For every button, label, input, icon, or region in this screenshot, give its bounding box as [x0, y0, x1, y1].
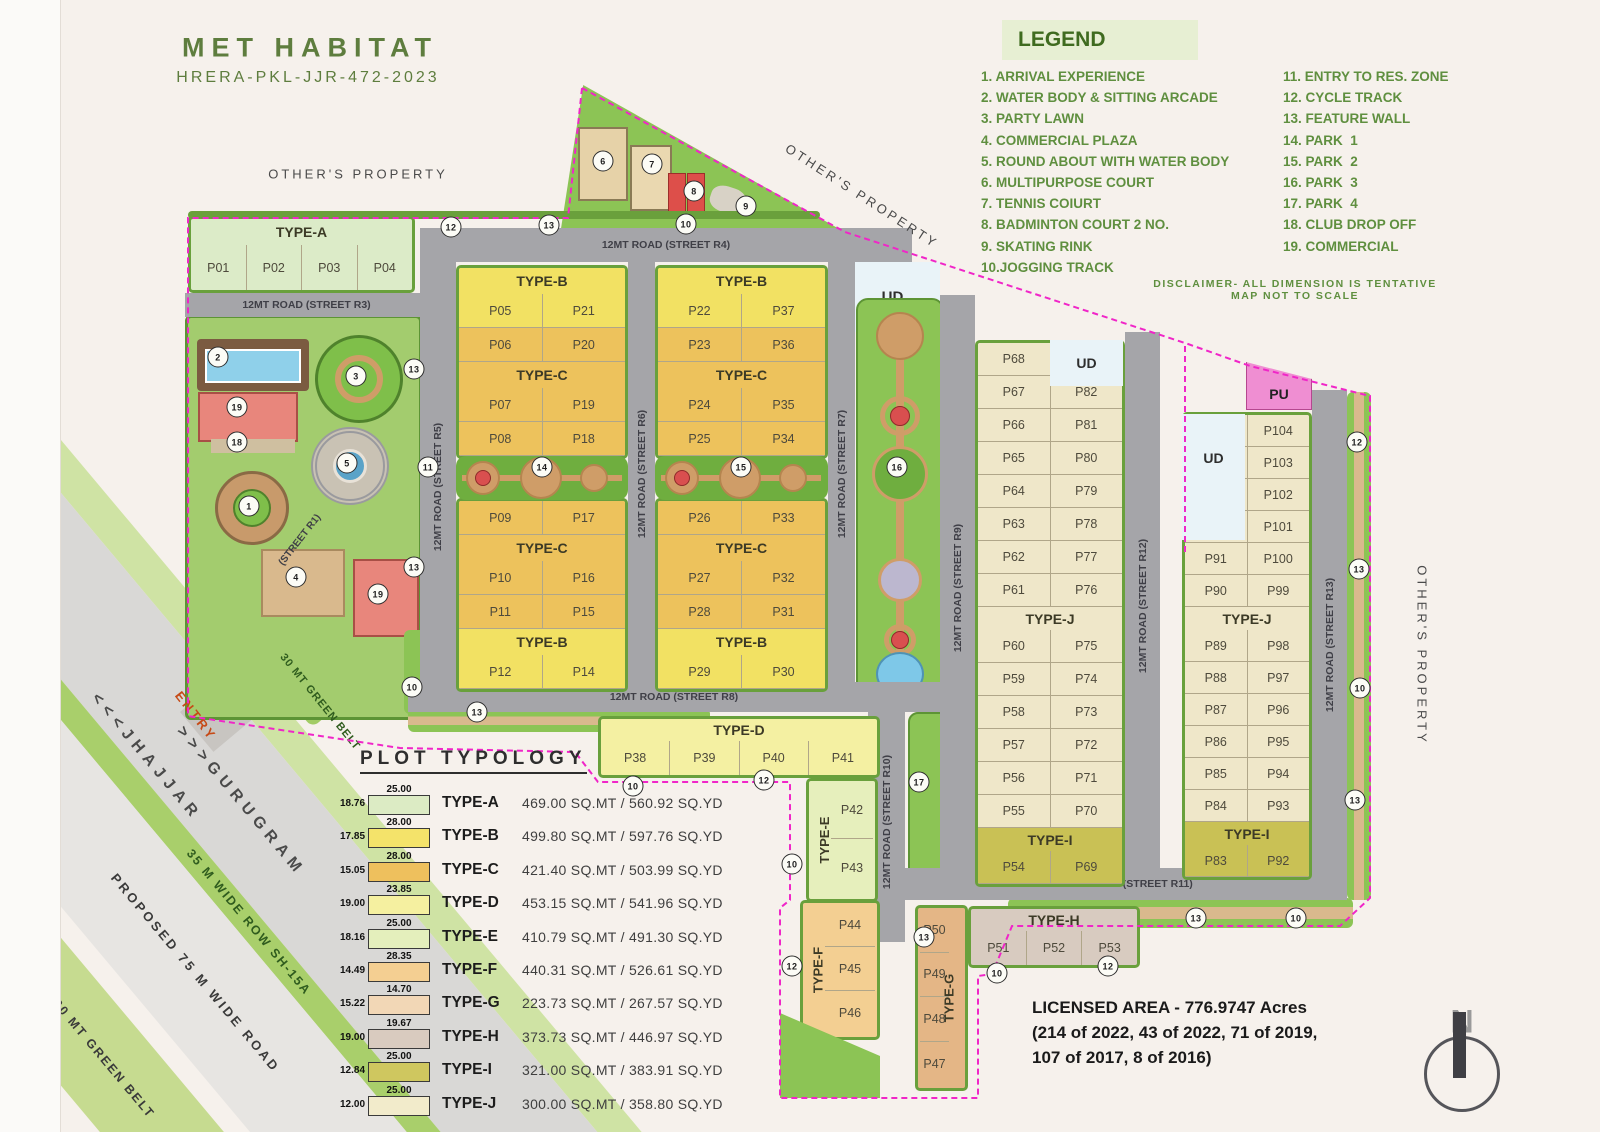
plot-P93: P93 [1247, 790, 1310, 821]
plot-P05: P05 [459, 294, 542, 327]
plot-P51: P51 [971, 931, 1026, 965]
map-marker-12: 12 [754, 770, 775, 791]
type-name: TYPE-D [442, 894, 514, 912]
typology-row-TYPE-G: 15.2214.70TYPE-G223.73 SQ.MT / 267.57 SQ… [340, 984, 740, 1018]
plot-P81: P81 [1050, 409, 1123, 441]
type-area: 421.40 SQ.MT / 503.99 SQ.YD [522, 862, 723, 878]
plot-row: P07P19 [459, 388, 625, 422]
road-label-r8: 12MT ROAD (STREET R8) [610, 691, 738, 703]
type-area: 410.79 SQ.MT / 491.30 SQ.YD [522, 929, 723, 945]
plot-row: P61P76 [978, 574, 1122, 607]
plot-P104: P104 [1247, 415, 1310, 446]
road-label-r4: 12MT ROAD (STREET R4) [602, 239, 730, 251]
map-marker-18: 18 [227, 432, 248, 453]
plot-row: P25P34 [658, 422, 825, 456]
type-color-swatch [368, 828, 430, 848]
legend-item: 17. PARK 4 [1283, 193, 1449, 214]
plot-P96: P96 [1247, 694, 1310, 725]
type-header-TYPE-C: TYPE-C [658, 535, 825, 561]
map-marker-9: 9 [736, 196, 757, 217]
map-marker-11: 11 [418, 457, 439, 478]
licensed-line-2: (214 of 2022, 43 of 2022, 71 of 2019, [1032, 1020, 1317, 1045]
block-c3: P09P17TYPE-CP10P16P11P15TYPE-BP12P14 [456, 498, 628, 692]
legend-item: 6. MULTIPURPOSE COURT [981, 172, 1229, 193]
plot-P19: P19 [542, 388, 626, 421]
plot-P35: P35 [741, 388, 825, 421]
plot-P55: P55 [978, 795, 1050, 827]
type-color-swatch [368, 895, 430, 915]
legend-item: 2. WATER BODY & SITTING ARCADE [981, 87, 1229, 108]
map-marker-13: 13 [1345, 790, 1366, 811]
plot-P44: P44 [825, 903, 875, 947]
plot-P12: P12 [459, 655, 542, 688]
block-label-typeA: TYPE-A [191, 219, 412, 245]
plot-P84: P84 [1185, 790, 1247, 821]
typology-row-TYPE-E: 18.1625.00TYPE-E410.79 SQ.MT / 491.30 SQ… [340, 918, 740, 952]
type-area: 223.73 SQ.MT / 267.57 SQ.YD [522, 995, 723, 1011]
legend-item: 7. TENNIS COIURT [981, 193, 1229, 214]
typology-row-TYPE-B: 17.8528.00TYPE-B499.80 SQ.MT / 597.76 SQ… [340, 817, 740, 851]
plot-P24: P24 [658, 388, 741, 421]
plot-P76: P76 [1050, 574, 1123, 606]
plot-P103: P103 [1247, 447, 1310, 478]
plot-P91: P91 [1185, 543, 1247, 574]
type-header-TYPE-C: TYPE-C [459, 362, 625, 388]
plot-row: P57P72 [978, 729, 1122, 762]
licensed-line-3: 107 of 2017, 8 of 2016) [1032, 1045, 1317, 1070]
plot-P14: P14 [542, 655, 626, 688]
road-r3: 12MT ROAD (STREET R3) [185, 293, 428, 317]
licensed-line-1: LICENSED AREA - 776.9747 Acres [1032, 995, 1317, 1020]
road-r7: 12MT ROAD (STREET R7) [828, 262, 855, 686]
plot-P80: P80 [1050, 442, 1123, 474]
plot-row: P54P69 [978, 851, 1122, 884]
type-area: 440.31 SQ.MT / 526.61 SQ.YD [522, 962, 723, 978]
plot-P20: P20 [542, 328, 626, 361]
plot-P58: P58 [978, 696, 1050, 728]
plot-P01: P01 [191, 245, 246, 290]
type-header-TYPE-B: TYPE-B [658, 629, 825, 655]
type-name: TYPE-C [442, 861, 514, 879]
park2-red-sphere [674, 470, 690, 486]
plot-depth: 12.84 [340, 1065, 364, 1076]
plot-P73: P73 [1050, 696, 1123, 728]
plot-row: P64P79 [978, 475, 1122, 508]
plot-row: P66P81 [978, 409, 1122, 442]
legend-item: 12. CYCLE TRACK [1283, 87, 1449, 108]
map-marker-13: 13 [539, 215, 560, 236]
type-area: 469.00 SQ.MT / 560.92 SQ.YD [522, 795, 723, 811]
ud-label-3: UD [1203, 450, 1223, 466]
legend-item: 14. PARK 1 [1283, 130, 1449, 151]
ud-area-3: UD [1182, 414, 1245, 540]
typology-row-TYPE-H: 19.0019.67TYPE-H373.73 SQ.MT / 446.97 SQ… [340, 1018, 740, 1052]
plot-P30: P30 [741, 655, 825, 688]
type-header-TYPE-J: TYPE-J [1185, 607, 1309, 630]
plot-depth: 12.00 [340, 1099, 364, 1110]
legend-item: 16. PARK 3 [1283, 172, 1449, 193]
plot-P43: P43 [831, 839, 873, 897]
plot-row: P90P99 [1185, 575, 1309, 607]
park1-red-sphere [475, 470, 491, 486]
north-arrow-bar [1453, 1012, 1466, 1078]
legend-item: 1. ARRIVAL EXPERIENCE [981, 66, 1229, 87]
map-marker-14: 14 [532, 457, 553, 478]
map-marker-10: 10 [1350, 678, 1371, 699]
plot-row: P62P77 [978, 541, 1122, 574]
plot-P90: P90 [1185, 575, 1247, 606]
plot-P70: P70 [1050, 795, 1123, 827]
plot-P27: P27 [658, 561, 741, 594]
plot-row: P28P31 [658, 595, 825, 629]
plot-row: P55P70 [978, 795, 1122, 828]
road-r6: 12MT ROAD (STREET R6) [628, 262, 655, 686]
plot-P78: P78 [1050, 508, 1123, 540]
plot-P04: P04 [357, 245, 413, 290]
map-marker-1: 1 [239, 496, 260, 517]
type-color-swatch [368, 1096, 430, 1116]
plot-P08: P08 [459, 422, 542, 455]
licensed-area: LICENSED AREA - 776.9747 Acres (214 of 2… [1032, 995, 1317, 1070]
project-title: MET HABITAT [182, 33, 438, 64]
others-property-top: OTHER'S PROPERTY [268, 167, 448, 182]
road-label-r10: 12MT ROAD (STREET R10) [881, 755, 893, 889]
plot-P06: P06 [459, 328, 542, 361]
typology-row-TYPE-I: 12.8425.00TYPE-I321.00 SQ.MT / 383.91 SQ… [340, 1051, 740, 1085]
road-r9: 12MT ROAD (STREET R9) [940, 295, 975, 880]
type-name: TYPE-A [442, 794, 514, 812]
plot-row: P08P18 [459, 422, 625, 456]
legend-col-1: 1. ARRIVAL EXPERIENCE2. WATER BODY & SIT… [981, 66, 1229, 278]
type-name: TYPE-B [442, 827, 514, 845]
plot-row: P26P33 [658, 501, 825, 535]
plot-P45: P45 [825, 947, 875, 991]
ud-label-2: UD [1076, 355, 1096, 371]
block-label-typeH: TYPE-H [971, 909, 1137, 931]
road-label-r5: 12MT ROAD (STREET R5) [432, 423, 444, 551]
type-color-swatch [368, 995, 430, 1015]
plot-P28: P28 [658, 595, 741, 628]
type-area: 321.00 SQ.MT / 383.91 SQ.YD [522, 1062, 723, 1078]
block-typeA: TYPE-AP01P02P03P04 [188, 216, 415, 293]
plot-P95: P95 [1247, 726, 1310, 757]
type-header-TYPE-C: TYPE-C [658, 362, 825, 388]
plot-P40: P40 [739, 741, 808, 775]
map-marker-13: 13 [404, 359, 425, 380]
plot-typology: PLOT TYPOLOGY 18.7625.00TYPE-A469.00 SQ.… [340, 748, 587, 1124]
plot-P49: P49 [920, 953, 949, 998]
plot-P62: P62 [978, 541, 1050, 573]
plot-P75: P75 [1050, 630, 1123, 662]
map-marker-5: 5 [337, 453, 358, 474]
legend-item: 8. BADMINTON COURT 2 NO. [981, 214, 1229, 235]
plot-row: P88P97 [1185, 662, 1309, 694]
typology-row-TYPE-A: 18.7625.00TYPE-A469.00 SQ.MT / 560.92 SQ… [340, 784, 740, 818]
plot-P88: P88 [1185, 662, 1247, 693]
map-marker-16: 16 [887, 457, 908, 478]
plot-row: P59P74 [978, 663, 1122, 696]
plot-P18: P18 [542, 422, 626, 455]
type-name: TYPE-F [442, 961, 514, 979]
legend-item: 19. COMMERCIAL [1283, 236, 1449, 257]
plot-P36: P36 [741, 328, 825, 361]
plot-P63: P63 [978, 508, 1050, 540]
type-header-TYPE-I: TYPE-I [1185, 822, 1309, 845]
plot-P42: P42 [831, 781, 873, 839]
map-marker-19: 19 [227, 397, 248, 418]
legend-item: 13. FEATURE WALL [1283, 108, 1449, 129]
plot-row: P56P71 [978, 762, 1122, 795]
map-marker-13: 13 [1349, 559, 1370, 580]
block-e: P68P67P82P66P81P65P80P64P79P63P78P62P77P… [975, 340, 1125, 887]
plot-P38: P38 [601, 741, 669, 775]
type-header-TYPE-B: TYPE-B [658, 268, 825, 294]
plot-P60: P60 [978, 630, 1050, 662]
plot-P83: P83 [1185, 845, 1247, 876]
plot-P101: P101 [1247, 511, 1310, 542]
type-color-swatch [368, 1029, 430, 1049]
map-marker-12: 12 [1347, 432, 1368, 453]
master-plan: <<<JHAJJAR >>>GURUGRAM 35 M WIDE ROW SH-… [0, 0, 1600, 1132]
map-marker-13: 13 [404, 557, 425, 578]
type-color-swatch [368, 795, 430, 815]
plot-P02: P02 [246, 245, 302, 290]
plot-P94: P94 [1247, 758, 1310, 789]
plot-P17: P17 [542, 501, 626, 534]
plot-P61: P61 [978, 574, 1050, 606]
plot-P33: P33 [741, 501, 825, 534]
road-label-r3: 12MT ROAD (STREET R3) [242, 299, 370, 311]
plot-P32: P32 [741, 561, 825, 594]
plot-P77: P77 [1050, 541, 1123, 573]
type-name: TYPE-J [442, 1095, 514, 1113]
type-header-TYPE-C: TYPE-C [459, 535, 625, 561]
legend-col-2: 11. ENTRY TO RES. ZONE12. CYCLE TRACK13.… [1283, 66, 1449, 257]
plot-depth: 18.76 [340, 798, 364, 809]
plot-P26: P26 [658, 501, 741, 534]
typology-row-TYPE-D: 19.0023.85TYPE-D453.15 SQ.MT / 541.96 SQ… [340, 884, 740, 918]
map-marker-13: 13 [467, 702, 488, 723]
plot-row: P86P95 [1185, 726, 1309, 758]
plot-P56: P56 [978, 762, 1050, 794]
plot-P92: P92 [1247, 845, 1310, 876]
plot-row: P09P17 [459, 501, 625, 535]
plot-P39: P39 [669, 741, 738, 775]
legend-title: LEGEND [1018, 28, 1106, 52]
legend-item: 18. CLUB DROP OFF [1283, 214, 1449, 235]
block-typeD: TYPE-DP38P39P40P41 [598, 716, 880, 778]
plot-P52: P52 [1026, 931, 1082, 965]
legend-item: 15. PARK 2 [1283, 151, 1449, 172]
map-marker-12: 12 [441, 217, 462, 238]
plot-P79: P79 [1050, 475, 1123, 507]
legend-item: 5. ROUND ABOUT WITH WATER BODY [981, 151, 1229, 172]
plot-row: P87P96 [1185, 694, 1309, 726]
typology-row-TYPE-C: 15.0528.00TYPE-C421.40 SQ.MT / 503.99 SQ… [340, 851, 740, 885]
plot-P85: P85 [1185, 758, 1247, 789]
plot-row: P24P35 [658, 388, 825, 422]
road-r12: 12MT ROAD (STREET R12) [1125, 332, 1160, 880]
pu-label: PU [1269, 386, 1288, 402]
plot-row: P65P80 [978, 442, 1122, 475]
road-label-r7: 12MT ROAD (STREET R7) [836, 410, 848, 538]
plot-row: P89P98 [1185, 630, 1309, 662]
type-area: 300.00 SQ.MT / 358.80 SQ.YD [522, 1096, 723, 1112]
road-r5: 12MT ROAD (STREET R5) [420, 262, 456, 712]
plot-row: P85P94 [1185, 758, 1309, 790]
plot-P72: P72 [1050, 729, 1123, 761]
plot-P69: P69 [1050, 851, 1123, 883]
plot-row: P91P100 [1185, 543, 1309, 575]
block-label-typeF: TYPE-F [811, 947, 826, 993]
block-c2: TYPE-BP22P37P23P36TYPE-CP24P35P25P34 [655, 265, 828, 459]
ud-area-2: UD [1050, 340, 1123, 386]
map-marker-10: 10 [987, 963, 1008, 984]
disclaimer-line-1: DISCLAIMER- ALL DIMENSION IS TENTATIVE [1140, 278, 1450, 290]
legend-item: 11. ENTRY TO RES. ZONE [1283, 66, 1449, 87]
legend-item: 10.JOGGING TRACK [981, 257, 1229, 278]
type-name: TYPE-I [442, 1061, 514, 1079]
map-marker-8: 8 [684, 181, 705, 202]
plot-P48: P48 [920, 997, 949, 1042]
plot-P31: P31 [741, 595, 825, 628]
plot-P21: P21 [542, 294, 626, 327]
map-marker-6: 6 [593, 151, 614, 172]
type-header-TYPE-B: TYPE-B [459, 629, 625, 655]
plot-depth: 17.85 [340, 831, 364, 842]
map-marker-10: 10 [402, 677, 423, 698]
plot-P57: P57 [978, 729, 1050, 761]
others-property-right: OTHER'S PROPERTY [1415, 565, 1430, 745]
map-marker-2: 2 [208, 347, 229, 368]
block-typeF: TYPE-FP44P45P46 [800, 900, 880, 1040]
plot-row: P27P32 [658, 561, 825, 595]
type-color-swatch [368, 862, 430, 882]
disclaimer: DISCLAIMER- ALL DIMENSION IS TENTATIVE M… [1140, 278, 1450, 302]
type-header-TYPE-J: TYPE-J [978, 607, 1122, 630]
type-name: TYPE-H [442, 1028, 514, 1046]
map-marker-10: 10 [782, 854, 803, 875]
type-color-swatch [368, 962, 430, 982]
type-header-TYPE-I: TYPE-I [978, 828, 1122, 851]
map-marker-7: 7 [642, 154, 663, 175]
plot-row: P11P15 [459, 595, 625, 629]
plot-row: P22P37 [658, 294, 825, 328]
plot-depth: 14.49 [340, 965, 364, 976]
plot-P59: P59 [978, 663, 1050, 695]
type-area: 453.15 SQ.MT / 541.96 SQ.YD [522, 895, 723, 911]
road-label-r12: 12MT ROAD (STREET R12) [1137, 539, 1149, 673]
plot-typology-title: PLOT TYPOLOGY [360, 748, 587, 774]
plot-row: P05P21 [459, 294, 625, 328]
map-marker-10: 10 [1286, 908, 1307, 929]
plot-row: P58P73 [978, 696, 1122, 729]
map-marker-10: 10 [676, 214, 697, 235]
plot-P34: P34 [741, 422, 825, 455]
plot-row: P12P14 [459, 655, 625, 689]
road-label-r6: 12MT ROAD (STREET R6) [636, 410, 648, 538]
plot-row: P83P92 [1185, 845, 1309, 877]
plot-P66: P66 [978, 409, 1050, 441]
type-area: 499.80 SQ.MT / 597.76 SQ.YD [522, 828, 723, 844]
plot-P68: P68 [978, 343, 1050, 375]
map-marker-15: 15 [731, 457, 752, 478]
plot-row: P06P20 [459, 328, 625, 362]
plot-P16: P16 [542, 561, 626, 594]
project-rera: HRERA-PKL-JJR-472-2023 [176, 69, 439, 87]
plot-P46: P46 [825, 991, 875, 1035]
map-marker-3: 3 [346, 366, 367, 387]
type-name: TYPE-E [442, 928, 514, 946]
disclaimer-line-2: MAP NOT TO SCALE [1140, 290, 1450, 302]
block-typeE: TYPE-EP42P43 [806, 778, 878, 902]
block-c1: TYPE-BP05P21P06P20TYPE-CP07P19P08P18 [456, 265, 628, 459]
map-marker-13: 13 [914, 927, 935, 948]
block-c4: P26P33TYPE-CP27P32P28P31TYPE-BP29P30 [655, 498, 828, 692]
map-marker-12: 12 [782, 956, 803, 977]
plot-P09: P09 [459, 501, 542, 534]
plot-P23: P23 [658, 328, 741, 361]
plot-P99: P99 [1247, 575, 1310, 606]
plot-row: P29P30 [658, 655, 825, 689]
plot-P22: P22 [658, 294, 741, 327]
type-color-swatch [368, 1062, 430, 1082]
plot-depth: 15.22 [340, 998, 364, 1009]
map-marker-13: 13 [1186, 908, 1207, 929]
plot-P37: P37 [741, 294, 825, 327]
plot-row: P84P93 [1185, 790, 1309, 822]
plot-depth: 19.00 [340, 898, 364, 909]
legend-item: 4. COMMERCIAL PLAZA [981, 130, 1229, 151]
legend-item: 3. PARTY LAWN [981, 108, 1229, 129]
road-label-r13: 12MT ROAD (STREET R13) [1324, 578, 1336, 712]
map-marker-12: 12 [1098, 956, 1119, 977]
road-r4: 12MT ROAD (STREET R4) [420, 228, 912, 262]
plot-P10: P10 [459, 561, 542, 594]
road-r13: 12MT ROAD (STREET R13) [1312, 390, 1347, 900]
type-area: 373.73 SQ.MT / 446.97 SQ.YD [522, 1029, 723, 1045]
plot-P86: P86 [1185, 726, 1247, 757]
legend: LEGEND [1002, 20, 1198, 60]
plot-P98: P98 [1247, 630, 1310, 661]
typology-row-TYPE-F: 14.4928.35TYPE-F440.31 SQ.MT / 526.61 SQ… [340, 951, 740, 985]
block-label-typeE: TYPE-E [817, 817, 832, 864]
plot-P11: P11 [459, 595, 542, 628]
plot-P25: P25 [658, 422, 741, 455]
plot-P97: P97 [1247, 662, 1310, 693]
plot-P67: P67 [978, 376, 1050, 408]
plot-row: P10P16 [459, 561, 625, 595]
map-marker-17: 17 [909, 772, 930, 793]
plot-row: P60P75 [978, 630, 1122, 663]
plot-P64: P64 [978, 475, 1050, 507]
plot-P29: P29 [658, 655, 741, 688]
plot-P15: P15 [542, 595, 626, 628]
plot-P54: P54 [978, 851, 1050, 883]
block-label-typeD: TYPE-D [601, 719, 877, 741]
plot-P102: P102 [1247, 479, 1310, 510]
plot-depth: 15.05 [340, 865, 364, 876]
type-header-TYPE-B: TYPE-B [459, 268, 625, 294]
type-name: TYPE-G [442, 994, 514, 1012]
plot-P47: P47 [920, 1042, 949, 1087]
plot-P87: P87 [1185, 694, 1247, 725]
plot-depth: 19.00 [340, 1032, 364, 1043]
legend-item: 9. SKATING RINK [981, 236, 1229, 257]
map-marker-19: 19 [368, 584, 389, 605]
plot-typology-rows: 18.7625.00TYPE-A469.00 SQ.MT / 560.92 SQ… [340, 784, 587, 1124]
plot-P74: P74 [1050, 663, 1123, 695]
